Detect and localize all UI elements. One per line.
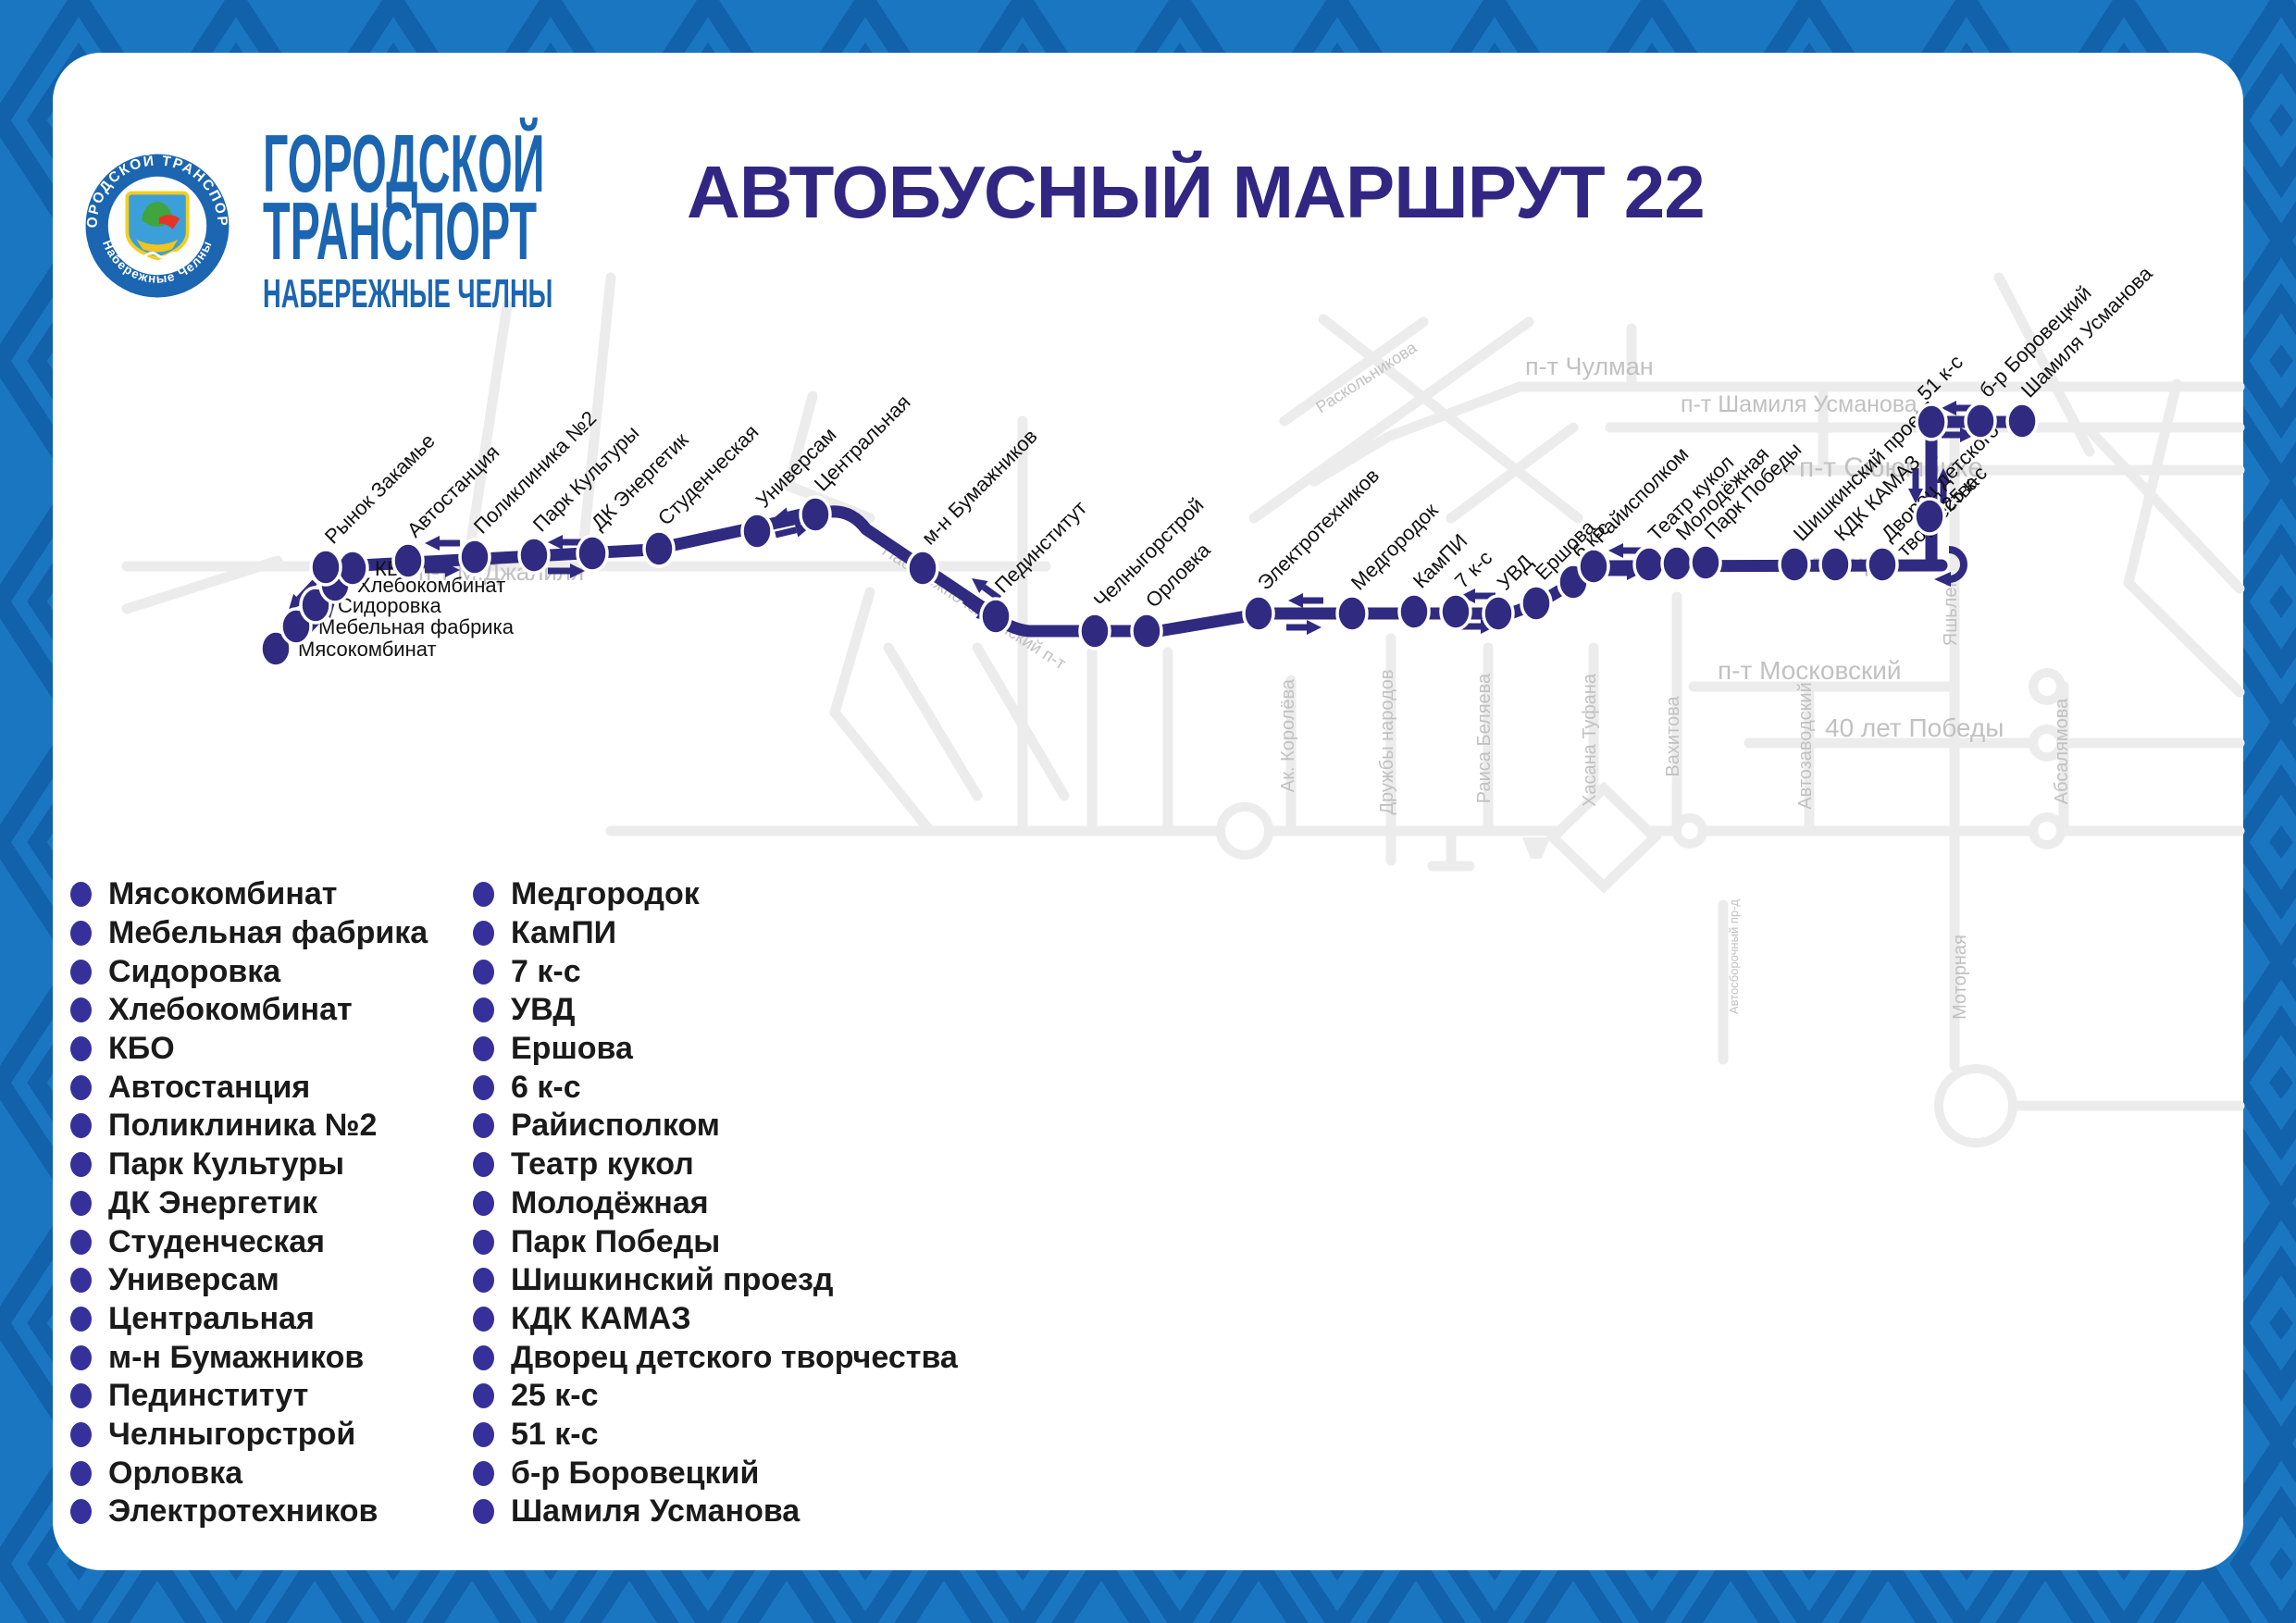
bullet-icon <box>473 1499 494 1524</box>
bullet-icon <box>70 1113 92 1138</box>
bullet-icon <box>70 1345 92 1370</box>
stop-name: Центральная <box>108 1301 315 1337</box>
list-item: Поликлиника №2 <box>70 1107 428 1146</box>
list-item: ДК Энергетик <box>70 1184 428 1223</box>
list-item: Парк Культуры <box>70 1146 428 1184</box>
list-item: Центральная <box>70 1300 428 1339</box>
stop-name: ДК Энергетик <box>108 1185 317 1221</box>
stop-name: Электротехников <box>108 1493 378 1530</box>
stop-name: Студенческая <box>108 1224 325 1260</box>
stop-name: КБО <box>108 1031 175 1067</box>
stop-name: Хлебокомбинат <box>108 992 353 1028</box>
list-item: Сидоровка <box>70 952 428 991</box>
list-item: Молодёжная <box>473 1184 958 1223</box>
stop-name: 51 к-с <box>511 1417 599 1453</box>
stop-name: 25 к-с <box>511 1378 599 1414</box>
stop-name: Мясокомбинат <box>108 876 337 912</box>
bullet-icon <box>473 1345 494 1370</box>
stop-name: Сидоровка <box>108 954 280 990</box>
bullet-icon <box>70 960 92 985</box>
list-item: КДК КАМАЗ <box>473 1300 958 1339</box>
stop-name: Универсам <box>108 1262 279 1298</box>
bullet-icon <box>473 997 494 1022</box>
logo-subtitle: НАБЕРЕЖНЫЕ ЧЕЛНЫ <box>263 272 580 316</box>
list-item: Медгородок <box>473 875 958 914</box>
list-item: Студенческая <box>70 1222 428 1261</box>
bullet-icon <box>70 1268 92 1293</box>
list-item: Автостанция <box>70 1068 428 1107</box>
stop-name: Райисполком <box>511 1108 720 1144</box>
list-item: 25 к-с <box>473 1377 958 1416</box>
list-item: 51 к-с <box>473 1416 958 1455</box>
bullet-icon <box>70 1422 92 1447</box>
stop-name: Челныгорстрой <box>108 1417 355 1453</box>
list-item: Электротехников <box>70 1493 428 1531</box>
stop-name: Пединститут <box>108 1378 308 1414</box>
bullet-icon <box>473 1422 494 1447</box>
stop-name: Дворец детского творчества <box>511 1340 958 1376</box>
bullet-icon <box>473 1036 494 1061</box>
bullet-icon <box>473 1307 494 1332</box>
list-item: Мебельная фабрика <box>70 914 428 953</box>
bullet-icon <box>473 921 494 946</box>
logo-title-line2: ТРАНСПОРТ <box>263 197 545 265</box>
bullet-icon <box>70 1191 92 1216</box>
stop-name: 7 к-с <box>511 954 581 990</box>
list-item: Райисполком <box>473 1107 958 1146</box>
list-item: б-р Боровецкий <box>473 1454 958 1493</box>
list-item: УВД <box>473 991 958 1030</box>
bullet-icon <box>473 1383 494 1408</box>
list-item: Хлебокомбинат <box>70 991 428 1030</box>
list-item: Театр кукол <box>473 1146 958 1184</box>
bullet-icon <box>70 1230 92 1255</box>
logo: ГОРОДСКОЙ ТРАНСПОРТ Набережные Челны ГОР… <box>80 139 776 316</box>
bullet-icon <box>473 1113 494 1138</box>
bullet-icon <box>473 1075 494 1100</box>
city-transport-emblem: ГОРОДСКОЙ ТРАНСПОРТ Набережные Челны <box>80 148 235 304</box>
bullet-icon <box>70 997 92 1022</box>
stop-name: 6 к-с <box>511 1070 581 1106</box>
stop-name: Молодёжная <box>511 1185 709 1221</box>
stop-name: УВД <box>511 992 575 1028</box>
list-item: Мясокомбинат <box>70 875 428 914</box>
bullet-icon <box>70 1075 92 1100</box>
list-item: Орловка <box>70 1454 428 1493</box>
bullet-icon <box>473 960 494 985</box>
list-item: Челныгорстрой <box>70 1416 428 1455</box>
list-item: 7 к-с <box>473 952 958 991</box>
stop-name: Шишкинский проезд <box>511 1262 834 1298</box>
bullet-icon <box>473 1152 494 1177</box>
stops-list-right: МедгородокКамПИ7 к-сУВДЕршова6 к-сРайисп… <box>473 875 958 1531</box>
bullet-icon <box>70 1383 92 1408</box>
bullet-icon <box>70 1307 92 1332</box>
stop-name: Мебельная фабрика <box>108 915 428 951</box>
bullet-icon <box>70 882 92 907</box>
bullet-icon <box>473 882 494 907</box>
list-item: м-н Бумажников <box>70 1338 428 1377</box>
list-item: Шамиля Усманова <box>473 1493 958 1531</box>
stop-name: Ершова <box>511 1031 633 1067</box>
bullet-icon <box>473 1461 494 1486</box>
stop-name: Парк Победы <box>511 1224 720 1260</box>
stop-name: м-н Бумажников <box>108 1340 364 1376</box>
stop-name: Автостанция <box>108 1070 310 1106</box>
bullet-icon <box>473 1230 494 1255</box>
stop-name: б-р Боровецкий <box>511 1456 759 1492</box>
bullet-icon <box>70 1499 92 1524</box>
list-item: КамПИ <box>473 914 958 953</box>
stop-name: Поликлиника №2 <box>108 1108 377 1144</box>
stop-name: Орловка <box>108 1456 242 1492</box>
bullet-icon <box>70 1036 92 1061</box>
list-item: Парк Победы <box>473 1222 958 1261</box>
stop-name: Парк Культуры <box>108 1146 344 1183</box>
poster-title: АВТОБУСНЫЙ МАРШРУТ 22 <box>687 155 1705 229</box>
list-item: Пединститут <box>70 1377 428 1416</box>
stop-name: Театр кукол <box>511 1146 694 1183</box>
stop-name: Медгородок <box>511 876 700 912</box>
bullet-icon <box>473 1268 494 1293</box>
bullet-icon <box>473 1191 494 1216</box>
bullet-icon <box>70 1152 92 1177</box>
bullet-icon <box>70 1461 92 1486</box>
bullet-icon <box>70 921 92 946</box>
stop-name: КДК КАМАЗ <box>511 1301 691 1337</box>
list-item: Ершова <box>473 1030 958 1069</box>
poster: п-т М.ДжалиляНабережночелнинский п-тРаск… <box>0 0 2296 1623</box>
stops-list-left: МясокомбинатМебельная фабрикаСидоровкаХл… <box>70 875 428 1531</box>
list-item: 6 к-с <box>473 1068 958 1107</box>
stop-name: КамПИ <box>511 915 616 951</box>
list-item: Дворец детского творчества <box>473 1338 958 1377</box>
list-item: Шишкинский проезд <box>473 1261 958 1300</box>
stop-name: Шамиля Усманова <box>511 1493 800 1530</box>
list-item: Универсам <box>70 1261 428 1300</box>
list-item: КБО <box>70 1030 428 1069</box>
